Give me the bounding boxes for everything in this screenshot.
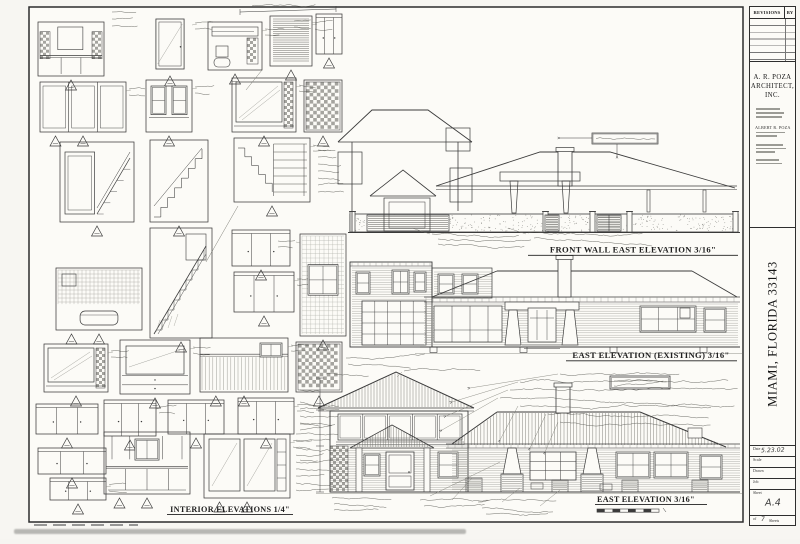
firm-name-line2: ARCHITECT, INC. [750, 83, 795, 101]
by-label: BY [785, 7, 795, 18]
scan-streak-artifact [14, 529, 466, 534]
title-block: REVISIONS BY A. R. POZA ARCHITECT, INC. … [749, 6, 796, 526]
front-wall-elevation-title: FRONT WALL EAST ELEVATION 3/16" [550, 245, 716, 255]
sheet-canvas: FRONT WALL EAST ELEVATION 3/16" EAST ELE… [0, 0, 800, 539]
project-location-vertical: MIAMI, FLORIDA 33143 [766, 261, 781, 407]
address-illegible [750, 144, 795, 153]
principal-name: ALBERT R. POZA [750, 125, 795, 130]
revisions-rows [750, 19, 795, 62]
east-existing-elevation-title: EAST ELEVATION (EXISTING) 3/16" [572, 350, 729, 360]
firm-services-illegible [750, 108, 795, 117]
sheet-number: A.4 [765, 497, 781, 508]
license-illegible [750, 132, 795, 137]
contact-illegible [750, 159, 795, 164]
date-label: Date [753, 447, 760, 451]
plot-stamp-illegible [34, 524, 138, 526]
firm-name-line1: A. R. POZA [750, 74, 795, 83]
scale-label: Scale [753, 458, 761, 462]
firm-block: A. R. POZA ARCHITECT, INC. ALBERT R. POZ… [750, 62, 795, 228]
job-label: Job [753, 480, 758, 484]
sheet-label: Sheet [753, 491, 762, 495]
date-field: Date 5.23.02 [750, 445, 795, 456]
date-value: 5.23.02 [761, 447, 785, 455]
revisions-header: REVISIONS BY [750, 7, 795, 19]
sheets-label: Sheets [769, 519, 779, 523]
drawn-field: Drawn [750, 467, 795, 478]
east-new-elevation-title: EAST ELEVATION 3/16" [597, 495, 695, 504]
interior-elevations-title: INTERIOR ELEVATIONS 1/4" [170, 505, 290, 514]
sheet-count-row: of 7 Sheets [750, 515, 795, 525]
sheet-count: 7 [761, 516, 765, 523]
job-field: Job [750, 478, 795, 489]
scale-field: Scale [750, 456, 795, 467]
of-label: of [753, 517, 756, 521]
scanned-architectural-sheet: { "labels": { "front_wall_title": "FRONT… [0, 0, 800, 539]
sheet-field: Sheet A.4 [750, 489, 795, 515]
drawn-label: Drawn [753, 469, 764, 473]
revisions-label: REVISIONS [750, 7, 785, 18]
title-block-fields: Date 5.23.02 Scale Drawn Job Sheet A.4 o… [750, 445, 795, 525]
